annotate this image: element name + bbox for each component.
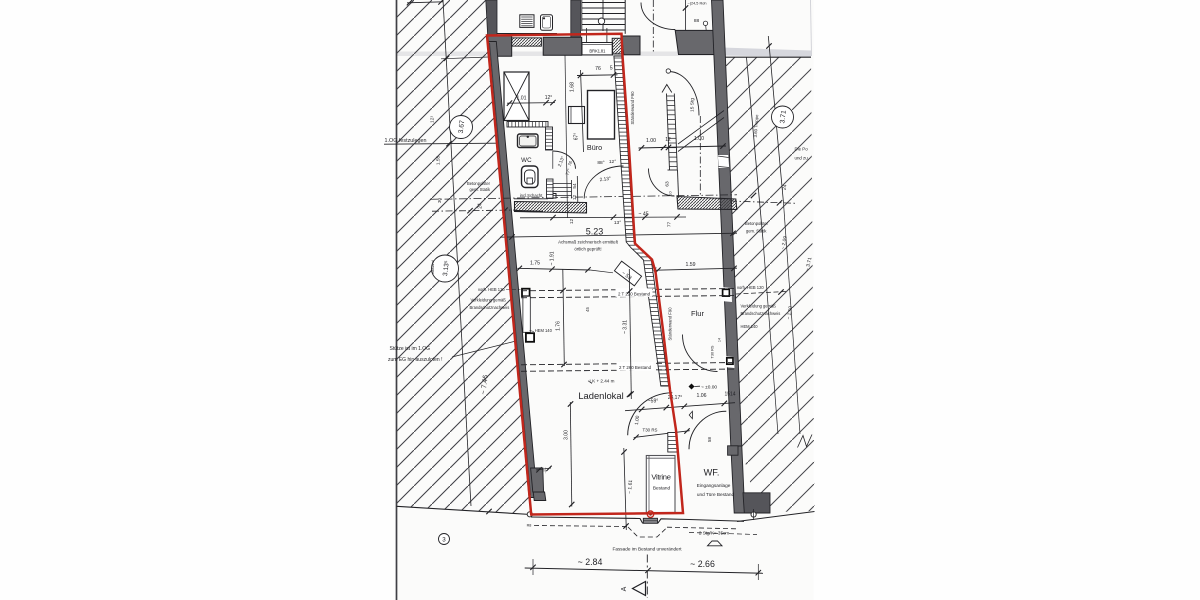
svg-text:~(24,5 Roh: ~(24,5 Roh	[688, 2, 707, 6]
svg-text:Bestand: Bestand	[653, 486, 671, 491]
svg-text:Die Po: Die Po	[795, 147, 809, 152]
svg-text:15 Stg: 15 Stg	[690, 98, 696, 112]
svg-text:12°: 12°	[609, 159, 616, 165]
svg-text:~59°: ~59°	[648, 398, 658, 404]
svg-text:1.06: 1.06	[696, 393, 706, 399]
svg-text:Flur: Flur	[691, 309, 704, 318]
svg-text:incl.Schacht: incl.Schacht	[520, 193, 543, 198]
svg-text:1.55: 1.55	[436, 156, 442, 166]
svg-text:1.OG festzulegen: 1.OG festzulegen	[385, 138, 427, 144]
svg-text:BRK1.81: BRK1.81	[589, 49, 606, 54]
svg-text:und Türe Bestand: und Türe Bestand	[697, 492, 735, 497]
svg-text:1.01: 1.01	[516, 96, 526, 102]
svg-text:Achsmaß zeichnerisch ermittelt: Achsmaß zeichnerisch ermittelt	[558, 240, 619, 245]
svg-text:76: 76	[595, 66, 601, 72]
svg-text:Brandschutznachweis: Brandschutznachweis	[470, 305, 510, 310]
svg-text:5: 5	[610, 65, 613, 71]
svg-text:1.59: 1.59	[685, 262, 695, 268]
svg-text:Stütze ist im 1.OG: Stütze ist im 1.OG	[390, 346, 431, 352]
svg-text:Verkleidung gemäß: Verkleidung gemäß	[741, 304, 777, 309]
svg-text:12¹: 12¹	[430, 116, 436, 123]
svg-text:T30 RS: T30 RS	[643, 428, 658, 433]
svg-text:Betonpolster: Betonpolster	[745, 221, 769, 226]
svg-text:WC: WC	[521, 157, 532, 164]
svg-text:Brandschutznachweis: Brandschutznachweis	[741, 311, 781, 316]
svg-text:zum EG hin auszuloten !: zum EG hin auszuloten !	[388, 357, 442, 363]
svg-text:13°: 13°	[614, 220, 621, 226]
svg-text:1.76: 1.76	[556, 321, 562, 331]
svg-text:2 Stg/K= 35cm: 2 Stg/K= 35cm	[699, 531, 729, 536]
svg-text:1514: 1514	[724, 391, 735, 397]
svg-text:Betonpolster: Betonpolster	[467, 181, 491, 186]
svg-text:vorh. HEB 120: vorh. HEB 120	[478, 287, 505, 292]
svg-text:gem. Statik: gem. Statik	[470, 187, 491, 192]
svg-text:~ ±0.00: ~ ±0.00	[701, 385, 717, 391]
svg-text:54: 54	[572, 183, 578, 189]
svg-text:3: 3	[442, 537, 446, 544]
svg-text:~ 1.61: ~ 1.61	[627, 479, 634, 494]
svg-text:Ständerwand F90: Ständerwand F90	[630, 91, 635, 125]
svg-text:~ 45: ~ 45	[638, 211, 648, 217]
svg-text:10: 10	[669, 191, 673, 195]
svg-text:12°: 12°	[545, 95, 553, 101]
svg-text:1.00: 1.00	[694, 136, 704, 142]
svg-text:gem. Statik: gem. Statik	[746, 229, 767, 234]
svg-text:30: 30	[437, 198, 442, 204]
svg-text:Ladenlokal: Ladenlokal	[578, 390, 623, 401]
svg-text:88°: 88°	[597, 160, 604, 166]
svg-text:3.00: 3.00	[564, 430, 570, 440]
svg-text:Fassade im Bestand unverändert: Fassade im Bestand unverändert	[612, 547, 682, 552]
svg-text:~ 1.91: ~ 1.91	[550, 251, 556, 265]
svg-text:~ 2.84: ~ 2.84	[578, 557, 603, 567]
svg-text:58: 58	[707, 437, 712, 442]
svg-text:14: 14	[718, 338, 722, 342]
svg-text:1.75: 1.75	[530, 260, 540, 266]
svg-text:12: 12	[569, 219, 575, 225]
svg-text:1.68: 1.68	[570, 82, 576, 92]
svg-text:Eingangsanlage: Eingangsanlage	[697, 483, 731, 488]
svg-text:45: 45	[585, 307, 590, 312]
svg-text:88: 88	[694, 18, 700, 24]
svg-text:Ständerwand F90: Ständerwand F90	[668, 307, 673, 341]
svg-text:1.00: 1.00	[646, 138, 656, 144]
svg-text:5.23: 5.23	[586, 227, 604, 237]
svg-text:Büro: Büro	[587, 143, 602, 152]
svg-text:LK + 2.44 m: LK + 2.44 m	[590, 378, 615, 383]
svg-text:2 T 260 Bestand: 2 T 260 Bestand	[619, 365, 652, 370]
svg-text:12: 12	[665, 137, 671, 143]
svg-text:2 T 220 Bestand: 2 T 220 Bestand	[618, 291, 651, 296]
svg-text:Abstand: Abstand	[431, 260, 435, 273]
svg-text:R8: R8	[527, 524, 532, 528]
svg-text:~ 3.31: ~ 3.31	[623, 320, 629, 334]
svg-text:vorh. HEB 120: vorh. HEB 120	[737, 285, 764, 290]
svg-text:~ 2.66: ~ 2.66	[690, 559, 715, 569]
svg-text:WF.: WF.	[704, 468, 720, 478]
svg-text:67°: 67°	[574, 133, 580, 141]
svg-text:24: 24	[478, 203, 484, 209]
svg-text:T30 RS: T30 RS	[711, 345, 715, 358]
svg-text:77: 77	[667, 222, 673, 228]
svg-text:.11: .11	[542, 467, 547, 473]
svg-text:und zu: und zu	[795, 156, 809, 161]
svg-text:Verkleidung gemäß: Verkleidung gemäß	[471, 298, 507, 303]
svg-text:HEM 140: HEM 140	[535, 328, 553, 333]
svg-text:A: A	[621, 586, 628, 591]
svg-text:Vitrine: Vitrine	[651, 473, 670, 482]
svg-text:HEM 140: HEM 140	[741, 324, 759, 329]
svg-text:örtlich geprüft!: örtlich geprüft!	[574, 246, 601, 251]
svg-text:63: 63	[665, 181, 671, 187]
svg-text:12: 12	[572, 195, 578, 201]
